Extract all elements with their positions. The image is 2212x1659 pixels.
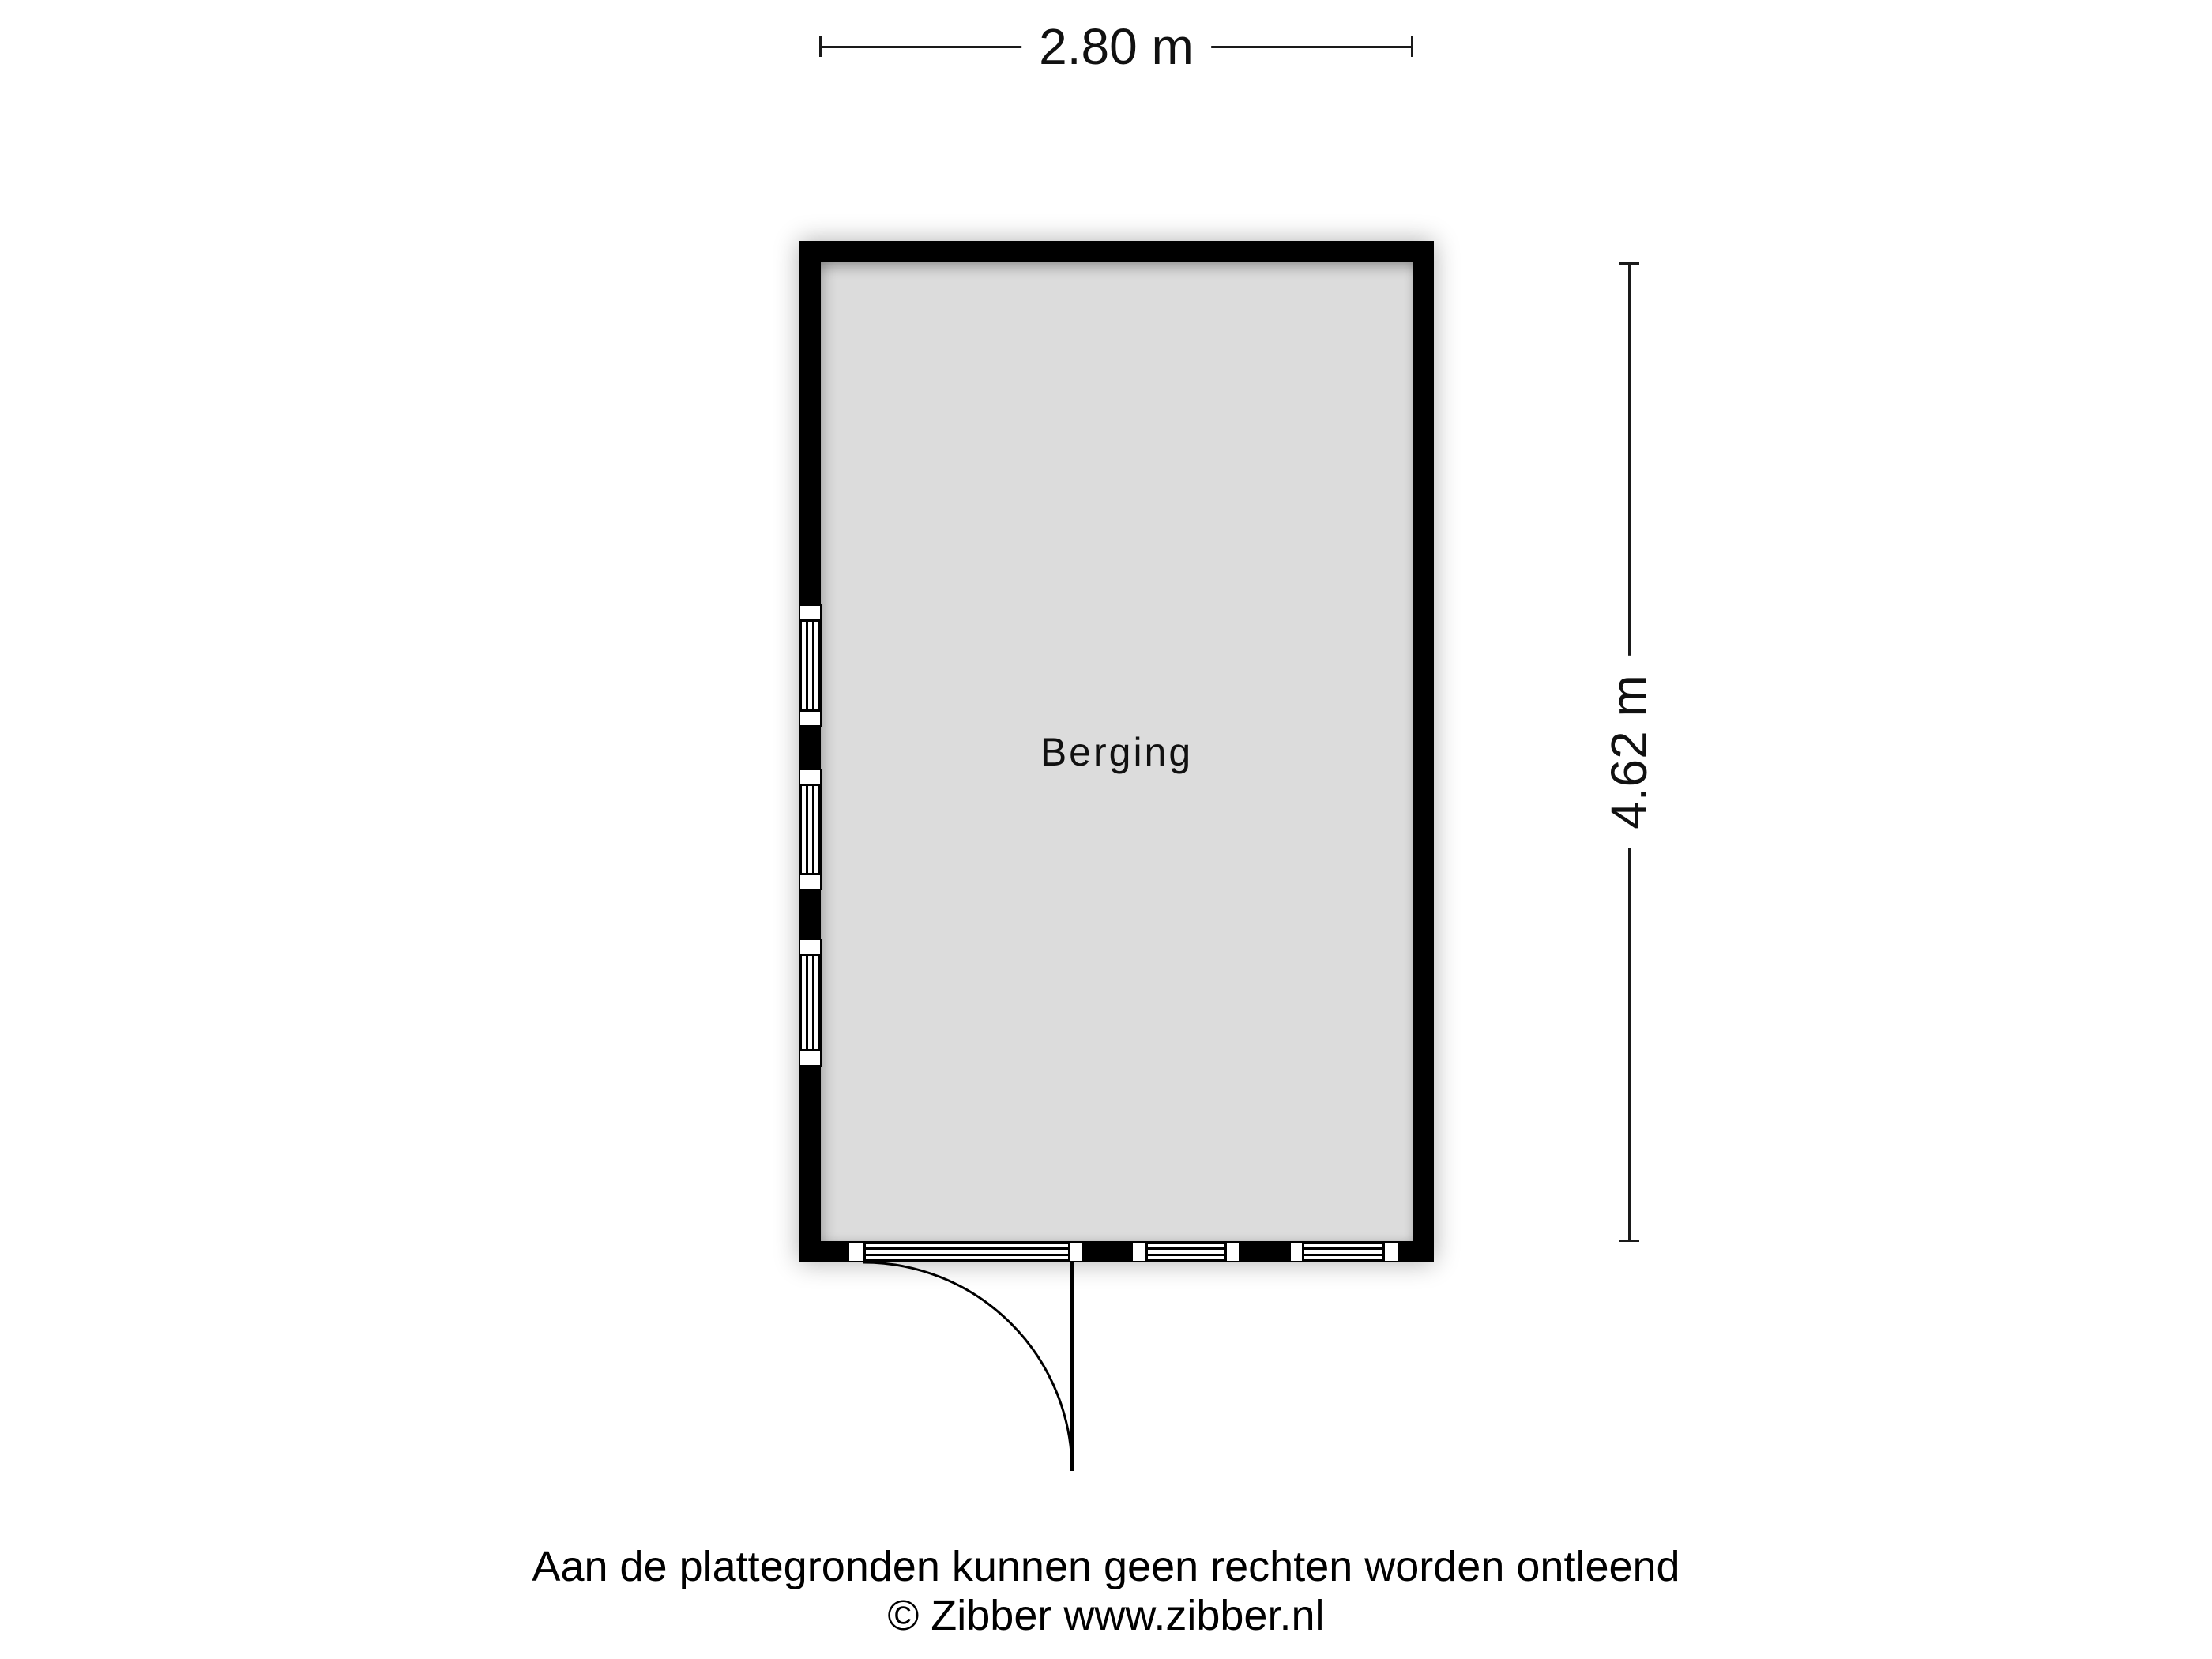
left-window-3 <box>799 939 822 1066</box>
room-berging: Berging <box>821 262 1413 1241</box>
door-swing <box>853 1256 1098 1485</box>
bottom-window-1-glazing <box>1145 1242 1227 1262</box>
left-window-1-glazing <box>799 619 821 712</box>
door-swing-arc <box>863 1262 1072 1471</box>
footer-copyright: © Zibber www.zibber.nl <box>0 1591 2212 1640</box>
left-window-1 <box>799 604 822 727</box>
left-window-2 <box>799 769 822 890</box>
height-dimension-label: 4.62 m <box>1600 656 1658 848</box>
left-window-2-glazing <box>799 784 821 875</box>
bottom-window-2 <box>1289 1241 1400 1262</box>
footer-disclaimer: Aan de plattegronden kunnen geen rechten… <box>0 1542 2212 1591</box>
floorplan-canvas: 2.80 m 4.62 m Berging <box>0 0 2212 1659</box>
room-label: Berging <box>1040 729 1193 775</box>
footer: Aan de plattegronden kunnen geen rechten… <box>0 1542 2212 1640</box>
width-dimension-label: 2.80 m <box>1021 17 1211 76</box>
building-walls: Berging <box>799 241 1434 1262</box>
left-window-3-glazing <box>799 954 821 1051</box>
bottom-window-1 <box>1131 1241 1240 1262</box>
bottom-window-2-glazing <box>1302 1242 1385 1262</box>
